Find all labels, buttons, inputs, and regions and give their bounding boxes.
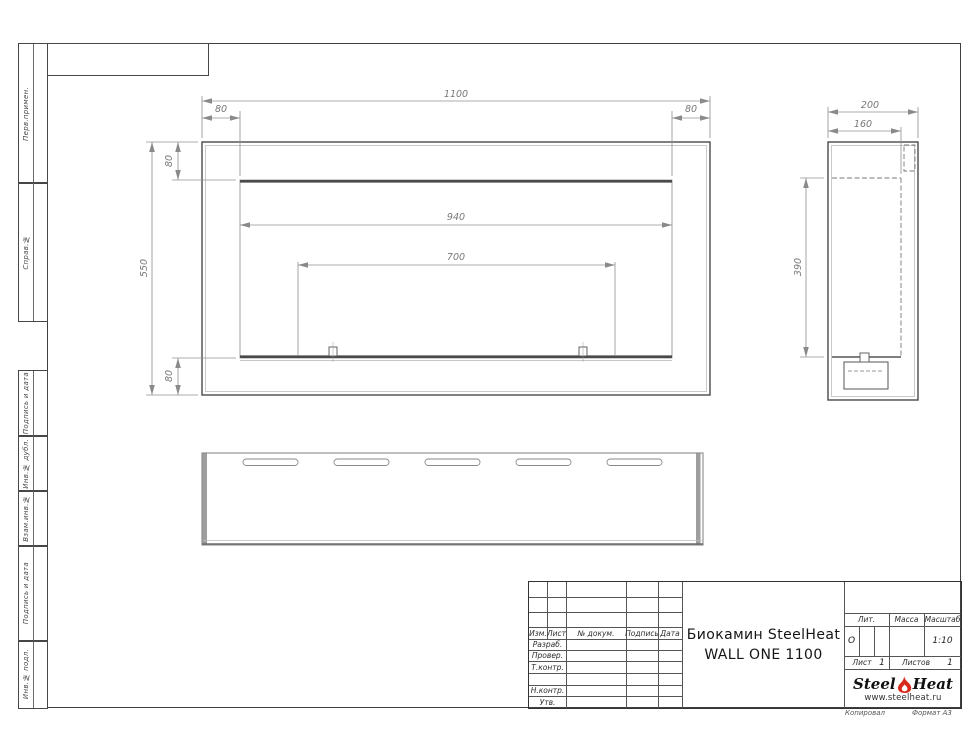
dim-top-margin: 80 [164,155,175,167]
dim-inner-depth: 160 [854,119,872,130]
side-dim-lines [800,107,918,357]
col-list: Лист [547,627,566,639]
col-data: Дата [658,627,682,639]
footer-format: Формат А3 [912,709,952,717]
dim-overall-width: 1100 [444,89,468,100]
dim-depth: 200 [861,100,879,111]
logo-text-heat: Heat [913,677,953,692]
dim-overall-height: 550 [139,259,150,277]
row-utv: Утв. [529,696,566,708]
title-line-1: Биокамин SteelHeat [687,627,840,643]
dim-left-margin: 80 [215,104,227,115]
col-ndocum: № докум. [566,627,626,639]
front-view: 1100 80 80 80 550 80 940 700 [139,89,710,395]
scale-value: 1:10 [924,626,961,656]
sheet-label: Лист [847,656,877,669]
title-line-2: WALL ONE 1100 [704,647,822,663]
hidden-lines [832,145,915,357]
lit-value: О [844,626,859,656]
col-podpis: Подпись [626,627,658,639]
dim-bottom-margin: 80 [164,370,175,382]
row-razrab: Разраб. [529,639,566,650]
dim-right-margin: 80 [685,104,697,115]
title-block: Изм. Лист № докум. Подпись Дата Разраб. … [528,581,962,709]
row-tkontr: Т.контр. [529,661,566,673]
scale-label: Масштаб [924,613,961,626]
dim-opening-height: 390 [793,258,804,276]
mass-label: Масса [889,613,924,626]
flame-icon [897,676,912,693]
footer-kopiroval: Копировал [845,709,885,717]
dim-burner-width: 700 [447,252,465,263]
document-title: Биокамин SteelHeat WALL ONE 1100 [683,582,844,708]
row-prover: Провер. [529,650,566,661]
row-nkontr: Н.контр. [529,685,566,696]
side-view: 200 160 390 [793,100,918,400]
logo-url: www.steelheat.ru [864,693,941,703]
sheets-value: 1 [944,656,956,669]
dim-opening-width: 940 [447,212,465,223]
lit-label: Лит. [844,613,889,626]
drawing-sheet: Перв.примен. Справ.№ Подпись и дата Инв.… [0,0,970,750]
firebox-opening [240,180,672,358]
burner-block [844,353,888,389]
sheets-label: Листов [895,656,937,669]
col-izm: Изм. [529,627,547,639]
company-logo: Steel Heat www.steelheat.ru [845,670,961,708]
bottom-view [202,453,703,545]
logo-text-steel: Steel [853,677,896,692]
sheet-value: 1 [877,656,887,669]
